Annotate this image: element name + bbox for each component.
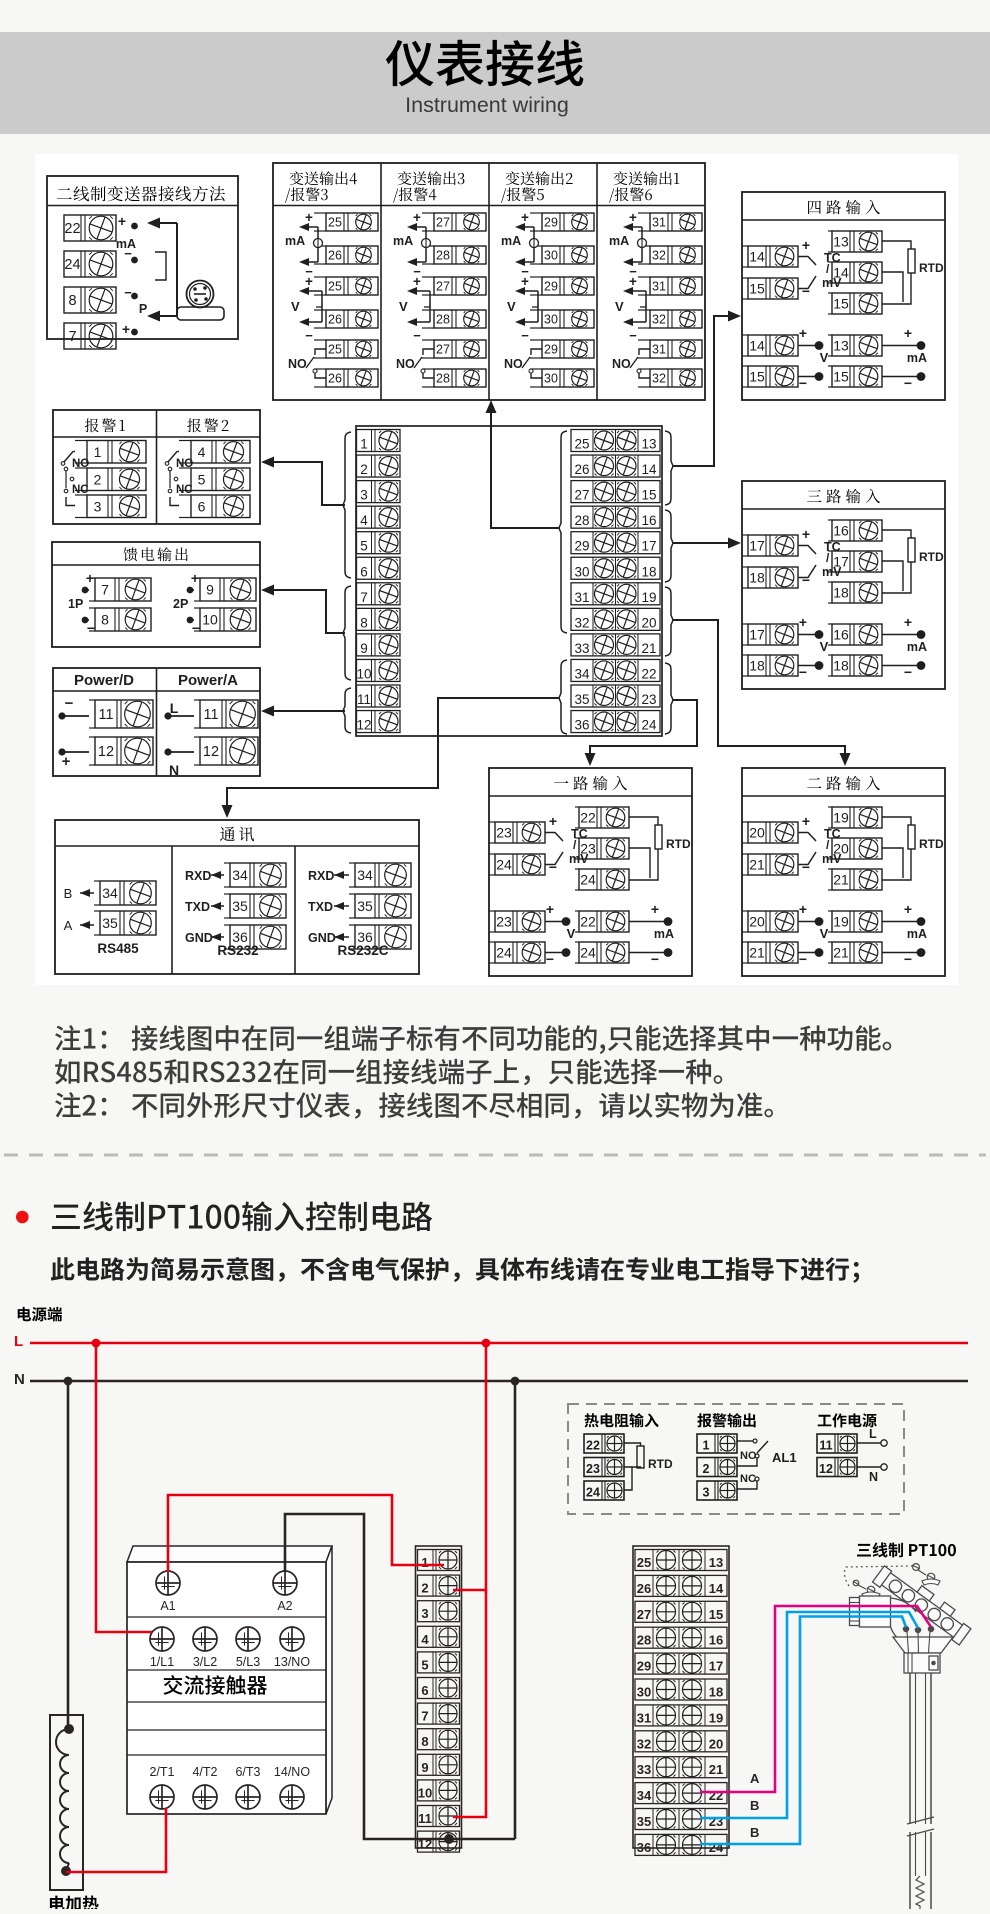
svg-text:2P: 2P: [173, 597, 188, 611]
svg-text:15: 15: [833, 296, 849, 312]
svg-text:B: B: [750, 1798, 759, 1813]
svg-text:Power/A: Power/A: [178, 672, 238, 689]
svg-text:−: −: [192, 620, 200, 636]
svg-text:22: 22: [580, 810, 596, 826]
svg-text:12: 12: [98, 744, 114, 760]
svg-text:+: +: [904, 325, 912, 341]
svg-text:−: −: [904, 375, 912, 391]
svg-text:22: 22: [641, 666, 656, 681]
svg-text:V: V: [615, 299, 624, 314]
svg-text:RTD: RTD: [919, 837, 944, 851]
svg-text:10: 10: [418, 1785, 432, 1800]
svg-text:RS232C: RS232C: [337, 943, 388, 958]
svg-text:23: 23: [496, 825, 512, 841]
svg-text:32: 32: [637, 1736, 651, 1751]
svg-text:16: 16: [709, 1633, 723, 1648]
svg-text:V: V: [507, 299, 516, 314]
svg-text:19: 19: [641, 590, 656, 605]
svg-text:28: 28: [436, 313, 450, 327]
svg-text:5: 5: [360, 539, 368, 554]
svg-text:2/T1: 2/T1: [149, 1765, 174, 1779]
svg-text:NO: NO: [504, 357, 523, 371]
svg-text:24: 24: [496, 857, 512, 873]
svg-text:25: 25: [328, 343, 342, 357]
svg-text:NC: NC: [72, 484, 89, 496]
svg-text:8: 8: [101, 612, 109, 628]
svg-text:2: 2: [703, 1462, 710, 1476]
svg-text:4: 4: [360, 513, 368, 528]
svg-text:+: +: [629, 274, 637, 289]
svg-text:27: 27: [436, 216, 450, 230]
svg-text:5/L3: 5/L3: [236, 1655, 260, 1669]
svg-text:+: +: [802, 526, 810, 542]
svg-text:AL1: AL1: [772, 1450, 797, 1465]
svg-text:7: 7: [360, 590, 368, 605]
svg-text:25: 25: [574, 437, 589, 452]
svg-text:−: −: [65, 695, 74, 712]
svg-text:14: 14: [833, 265, 849, 281]
svg-text:RTD: RTD: [666, 837, 691, 851]
svg-text:22: 22: [64, 221, 80, 237]
svg-text:17: 17: [709, 1659, 723, 1674]
svg-text:9: 9: [206, 582, 214, 598]
svg-text:16: 16: [833, 523, 849, 539]
svg-text:27: 27: [436, 280, 450, 294]
svg-text:13: 13: [709, 1555, 723, 1570]
svg-text:12: 12: [356, 718, 371, 733]
svg-text:2: 2: [360, 462, 368, 477]
svg-text:NO: NO: [396, 357, 415, 371]
svg-text:+: +: [549, 813, 557, 829]
svg-text:16: 16: [833, 627, 849, 643]
svg-text:mA: mA: [501, 234, 521, 248]
svg-text:+: +: [629, 210, 637, 225]
svg-text:27: 27: [637, 1607, 651, 1622]
svg-text:P: P: [139, 302, 147, 316]
svg-text:−: −: [802, 283, 810, 299]
svg-text:15: 15: [749, 369, 765, 385]
svg-text:18: 18: [833, 585, 849, 601]
svg-text:20: 20: [749, 825, 765, 841]
svg-text:36: 36: [637, 1840, 651, 1855]
svg-text:11: 11: [418, 1811, 432, 1826]
svg-text:GND: GND: [185, 931, 213, 945]
svg-text:mA: mA: [907, 927, 927, 941]
svg-text:11: 11: [98, 707, 113, 723]
svg-text:+: +: [413, 274, 421, 289]
svg-text:36: 36: [574, 718, 589, 733]
svg-text:23: 23: [641, 692, 656, 707]
svg-text:26: 26: [328, 249, 342, 263]
svg-text:11: 11: [203, 707, 218, 723]
svg-text:35: 35: [637, 1814, 651, 1829]
svg-text:13: 13: [833, 338, 849, 354]
svg-text:−: −: [904, 664, 912, 680]
svg-text:+: +: [802, 813, 810, 829]
svg-text:+: +: [191, 570, 199, 586]
svg-text:32: 32: [574, 615, 589, 630]
svg-text:32: 32: [652, 372, 666, 386]
svg-text:−: −: [629, 328, 637, 343]
svg-text:mA: mA: [907, 640, 927, 654]
svg-text:+: +: [521, 274, 529, 289]
svg-text:30: 30: [637, 1685, 651, 1700]
svg-text:19: 19: [833, 914, 849, 930]
svg-text:7: 7: [101, 582, 109, 598]
svg-text:3/L2: 3/L2: [193, 1655, 217, 1669]
svg-text:+: +: [305, 274, 313, 289]
svg-text:21: 21: [641, 641, 656, 656]
svg-text:4: 4: [198, 444, 206, 460]
svg-text:11: 11: [357, 692, 371, 707]
svg-text:6: 6: [198, 498, 206, 514]
svg-text:20: 20: [749, 914, 765, 930]
svg-text:21: 21: [709, 1762, 723, 1777]
svg-text:NO: NO: [288, 357, 307, 371]
svg-text:17: 17: [749, 627, 765, 643]
svg-text:13/NO: 13/NO: [274, 1655, 310, 1669]
svg-text:26: 26: [574, 462, 589, 477]
svg-text:9: 9: [360, 641, 368, 656]
svg-text:3: 3: [94, 498, 102, 514]
svg-text:+: +: [651, 901, 659, 917]
svg-text:34: 34: [637, 1788, 652, 1803]
svg-text:24: 24: [64, 257, 80, 273]
svg-text:6: 6: [360, 564, 368, 579]
svg-text:24: 24: [586, 1486, 600, 1500]
svg-text:22: 22: [709, 1788, 723, 1803]
svg-text:4/T2: 4/T2: [192, 1765, 217, 1779]
svg-text:+: +: [802, 237, 810, 253]
svg-text:18: 18: [641, 564, 656, 579]
svg-text:16: 16: [641, 513, 656, 528]
svg-text:34: 34: [102, 885, 118, 901]
svg-text:+: +: [904, 614, 912, 630]
svg-text:TXD: TXD: [308, 900, 333, 914]
svg-text:18: 18: [749, 658, 765, 674]
svg-text:27: 27: [436, 343, 450, 357]
svg-text:30: 30: [574, 564, 589, 579]
svg-text:34: 34: [357, 867, 373, 883]
svg-text:28: 28: [574, 513, 589, 528]
svg-text:NO: NO: [72, 458, 89, 470]
svg-text:14: 14: [749, 338, 765, 354]
svg-text:15: 15: [749, 281, 765, 297]
svg-text:L: L: [170, 700, 179, 716]
svg-text:−: −: [802, 859, 810, 875]
svg-text:12: 12: [203, 744, 219, 760]
svg-text:7: 7: [68, 329, 76, 345]
svg-text:1: 1: [94, 444, 102, 460]
svg-text:−: −: [904, 951, 912, 967]
svg-text:31: 31: [652, 280, 666, 294]
svg-text:8: 8: [421, 1734, 428, 1749]
svg-text:1: 1: [360, 437, 368, 452]
svg-text:29: 29: [544, 216, 558, 230]
svg-text:11: 11: [819, 1439, 832, 1453]
svg-text:9: 9: [421, 1760, 428, 1775]
svg-text:35: 35: [574, 692, 589, 707]
svg-text:30: 30: [544, 372, 558, 386]
svg-text:35: 35: [357, 898, 373, 914]
svg-text:+: +: [546, 901, 554, 917]
svg-text:−: −: [521, 328, 529, 343]
svg-text:1P: 1P: [68, 597, 83, 611]
svg-text:mA: mA: [393, 234, 413, 248]
svg-text:15: 15: [709, 1607, 723, 1622]
svg-text:22: 22: [586, 1439, 600, 1453]
svg-text:28: 28: [436, 372, 450, 386]
svg-text:NO: NO: [176, 458, 193, 470]
svg-text:21: 21: [749, 945, 765, 961]
svg-text:3: 3: [421, 1606, 428, 1621]
svg-text:20: 20: [833, 841, 849, 857]
svg-text:30: 30: [544, 313, 558, 327]
svg-text:RTD: RTD: [919, 261, 944, 275]
svg-text:15: 15: [833, 369, 849, 385]
svg-text:33: 33: [574, 641, 589, 656]
svg-text:+: +: [521, 210, 529, 225]
svg-text:mA: mA: [609, 234, 629, 248]
svg-text:19: 19: [709, 1710, 723, 1725]
svg-text:NO: NO: [612, 357, 631, 371]
svg-text:3: 3: [360, 488, 368, 503]
svg-text:−: −: [124, 285, 132, 300]
svg-text:26: 26: [637, 1581, 651, 1596]
svg-text:−: −: [305, 328, 313, 343]
svg-text:29: 29: [544, 280, 558, 294]
svg-text:25: 25: [637, 1555, 651, 1570]
svg-text:+: +: [799, 325, 807, 341]
svg-text:17: 17: [749, 538, 765, 554]
svg-text:18: 18: [833, 658, 849, 674]
svg-text:mA: mA: [907, 351, 927, 365]
svg-text:A: A: [750, 1771, 760, 1786]
svg-text:10: 10: [202, 612, 218, 628]
svg-text:32: 32: [652, 249, 666, 263]
svg-text:+: +: [799, 614, 807, 630]
svg-text:26: 26: [328, 372, 342, 386]
svg-text:14: 14: [749, 249, 765, 265]
svg-text:+: +: [413, 210, 421, 225]
svg-text:−: −: [799, 664, 807, 680]
svg-text:18: 18: [749, 570, 765, 586]
svg-text:27: 27: [574, 488, 589, 503]
svg-text:L: L: [869, 1427, 877, 1441]
svg-text:31: 31: [637, 1710, 651, 1725]
svg-text:21: 21: [833, 872, 849, 888]
svg-text:24: 24: [709, 1840, 724, 1855]
svg-text:18: 18: [709, 1685, 723, 1700]
svg-text:5: 5: [198, 471, 206, 487]
svg-text:A1: A1: [160, 1599, 175, 1613]
svg-text:14: 14: [641, 462, 657, 477]
svg-text:32: 32: [652, 313, 666, 327]
svg-text:+: +: [305, 210, 313, 225]
svg-text:31: 31: [652, 343, 666, 357]
svg-text:17: 17: [641, 539, 656, 554]
svg-text:23: 23: [586, 1462, 600, 1476]
svg-text:−: −: [413, 328, 421, 343]
svg-text:7: 7: [421, 1709, 428, 1724]
svg-text:25: 25: [328, 280, 342, 294]
svg-text:6: 6: [421, 1683, 428, 1698]
svg-text:3: 3: [703, 1486, 710, 1500]
svg-text:29: 29: [574, 539, 589, 554]
svg-text:NC: NC: [740, 1473, 756, 1485]
svg-text:14/NO: 14/NO: [274, 1765, 310, 1779]
svg-text:24: 24: [580, 872, 596, 888]
svg-text:13: 13: [641, 437, 656, 452]
svg-text:24: 24: [641, 718, 657, 733]
svg-text:35: 35: [232, 898, 248, 914]
svg-text:4: 4: [421, 1632, 429, 1647]
svg-text:mA: mA: [285, 234, 305, 248]
svg-text:−: −: [802, 572, 810, 588]
svg-text:RS232: RS232: [217, 943, 258, 958]
svg-text:+: +: [799, 901, 807, 917]
svg-text:−: −: [549, 859, 557, 875]
svg-text:33: 33: [637, 1762, 651, 1777]
svg-text:A2: A2: [277, 1599, 292, 1613]
svg-text:10: 10: [356, 666, 371, 681]
svg-text:14: 14: [709, 1581, 724, 1596]
svg-text:26: 26: [328, 313, 342, 327]
svg-text:22: 22: [580, 914, 596, 930]
svg-text:6/T3: 6/T3: [235, 1765, 260, 1779]
svg-text:2: 2: [94, 471, 102, 487]
svg-text:28: 28: [637, 1633, 651, 1648]
svg-text:Instrument wiring: Instrument wiring: [405, 93, 569, 117]
svg-text:34: 34: [232, 867, 248, 883]
svg-text:1: 1: [421, 1555, 428, 1570]
svg-text:+: +: [122, 321, 130, 337]
svg-text:25: 25: [328, 216, 342, 230]
svg-text:20: 20: [641, 615, 656, 630]
svg-text:29: 29: [544, 343, 558, 357]
svg-text:A: A: [64, 918, 73, 933]
svg-text:23: 23: [709, 1814, 723, 1829]
svg-text:24: 24: [580, 945, 596, 961]
svg-text:28: 28: [436, 249, 450, 263]
svg-text:V: V: [291, 299, 300, 314]
svg-text:23: 23: [580, 841, 596, 857]
svg-text:−: −: [799, 951, 807, 967]
svg-text:−: −: [87, 620, 95, 636]
svg-text:GND: GND: [308, 931, 336, 945]
svg-text:RTD: RTD: [919, 550, 944, 564]
svg-text:−: −: [124, 246, 132, 261]
svg-text:RTD: RTD: [648, 1457, 673, 1471]
svg-text:N: N: [869, 1470, 878, 1484]
svg-text:17: 17: [833, 554, 849, 570]
svg-text:2: 2: [421, 1581, 428, 1596]
svg-text:V: V: [820, 926, 829, 941]
svg-text:RS485: RS485: [97, 941, 139, 956]
svg-text:5: 5: [421, 1657, 428, 1672]
svg-text:+: +: [904, 901, 912, 917]
svg-text:24: 24: [496, 945, 512, 961]
svg-text:19: 19: [833, 810, 849, 826]
svg-text:N: N: [169, 762, 179, 778]
svg-text:mA: mA: [654, 927, 674, 941]
svg-text:RXD: RXD: [308, 869, 334, 883]
svg-text:B: B: [64, 886, 73, 901]
svg-text:−: −: [651, 951, 659, 967]
svg-text:Power/D: Power/D: [74, 672, 134, 689]
svg-text:13: 13: [833, 234, 849, 250]
svg-text:8: 8: [68, 293, 76, 309]
svg-text:−: −: [546, 951, 554, 967]
svg-text:23: 23: [496, 914, 512, 930]
svg-text:NC: NC: [176, 484, 193, 496]
svg-text:V: V: [567, 926, 576, 941]
svg-text:TXD: TXD: [185, 900, 210, 914]
svg-text:31: 31: [652, 216, 666, 230]
svg-text:31: 31: [574, 590, 589, 605]
svg-text:35: 35: [102, 915, 118, 931]
svg-text:12: 12: [819, 1462, 833, 1476]
svg-text:RXD: RXD: [185, 869, 211, 883]
svg-text:34: 34: [574, 666, 590, 681]
svg-text:+: +: [118, 213, 126, 229]
svg-text:V: V: [820, 639, 829, 654]
svg-text:+: +: [86, 570, 94, 586]
svg-text:8: 8: [360, 615, 368, 630]
svg-text:29: 29: [637, 1659, 651, 1674]
svg-text:−: −: [799, 375, 807, 391]
svg-text:V: V: [820, 350, 829, 365]
svg-text:+: +: [62, 753, 71, 770]
svg-text:21: 21: [749, 857, 765, 873]
svg-text:21: 21: [833, 945, 849, 961]
svg-text:20: 20: [709, 1736, 723, 1751]
svg-text:N: N: [14, 1371, 25, 1388]
svg-text:1/L1: 1/L1: [150, 1655, 174, 1669]
svg-text:L: L: [14, 1333, 23, 1350]
svg-text:V: V: [399, 299, 408, 314]
svg-text:B: B: [750, 1825, 759, 1840]
svg-text:30: 30: [544, 249, 558, 263]
svg-text:1: 1: [703, 1439, 710, 1453]
svg-text:15: 15: [641, 488, 656, 503]
